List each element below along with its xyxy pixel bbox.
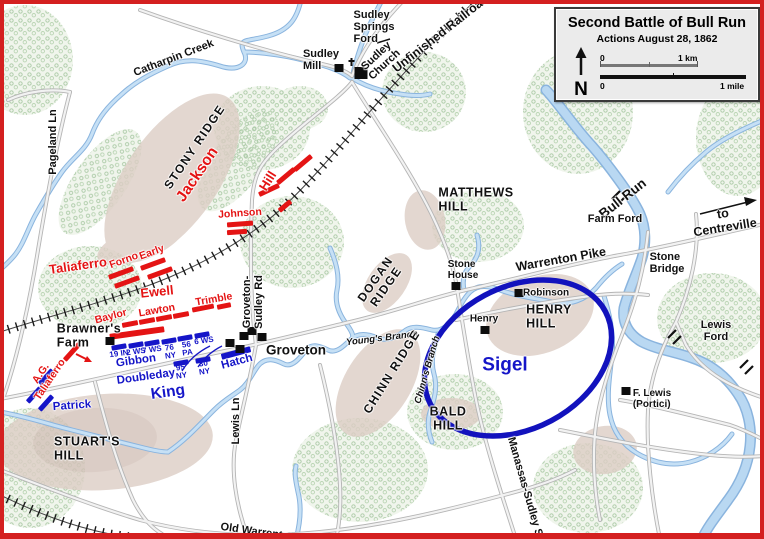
north-arrow-icon (573, 47, 589, 77)
map-title: Second Battle of Bull Run (556, 15, 758, 31)
stone-house-label: Stone House (448, 260, 479, 282)
compass: N (564, 47, 598, 97)
scale-mile-label: 1 mile (720, 81, 744, 91)
compass-n-label: N (564, 82, 598, 97)
henry-hill-label: HENRY HILL (526, 304, 572, 331)
battle-map: Second Battle of Bull Run Actions August… (0, 0, 764, 539)
stuarts-hill-label: STUART'S HILL (54, 436, 120, 463)
stone-house-building (452, 282, 461, 290)
lewis-ln-label: Lewis Ln (231, 397, 243, 444)
f-lewis-building (622, 387, 631, 395)
sigel-label: Sigel (482, 356, 527, 377)
regt-76ny-label: 76 NY (163, 343, 176, 360)
groveton-building (258, 333, 267, 341)
groveton-label: Groveton (266, 344, 326, 359)
henry-house-building (481, 326, 490, 334)
groveton-sudley-rd-label: Groveton- Sudley Rd (242, 275, 266, 329)
stone-bridge-label: Stone Bridge (650, 252, 685, 276)
bald-hill-label: BALD HILL (430, 406, 467, 433)
robinson-label: Robinson (523, 289, 569, 300)
sudley-mill-label: Sudley Mill (303, 49, 339, 73)
f-lewis-portici-label: F. Lewis (Portici) (633, 389, 671, 411)
lewis-ford-label: Lewis Ford (692, 320, 740, 344)
henry-label: Henry (470, 315, 498, 326)
map-subtitle: Actions August 28, 1862 (556, 33, 758, 45)
matthews-hill-label: MATTHEWS HILL (438, 187, 513, 214)
groveton-building (226, 339, 235, 347)
pageland-ln-label: Pageland Ln (48, 109, 60, 174)
scale-bar: 0 1 km 0 1 mile (600, 53, 748, 91)
regt-56pa-label: 56 PA (181, 340, 194, 357)
groveton-building (236, 345, 245, 353)
farm-ford-label: Farm Ford (588, 214, 642, 226)
regt-95ny-label: 95 NY (174, 363, 187, 380)
regt-30ny-label: 30 NY (197, 359, 210, 376)
brawners-farm-label: Brawner's Farm (57, 323, 121, 350)
attack-arrow (76, 354, 92, 362)
scale-mile-zero: 0 (600, 81, 605, 91)
scale-km-label: 1 km (678, 53, 697, 63)
map-legend: Second Battle of Bull Run Actions August… (554, 7, 760, 102)
ford-mark-southeast (740, 360, 753, 374)
